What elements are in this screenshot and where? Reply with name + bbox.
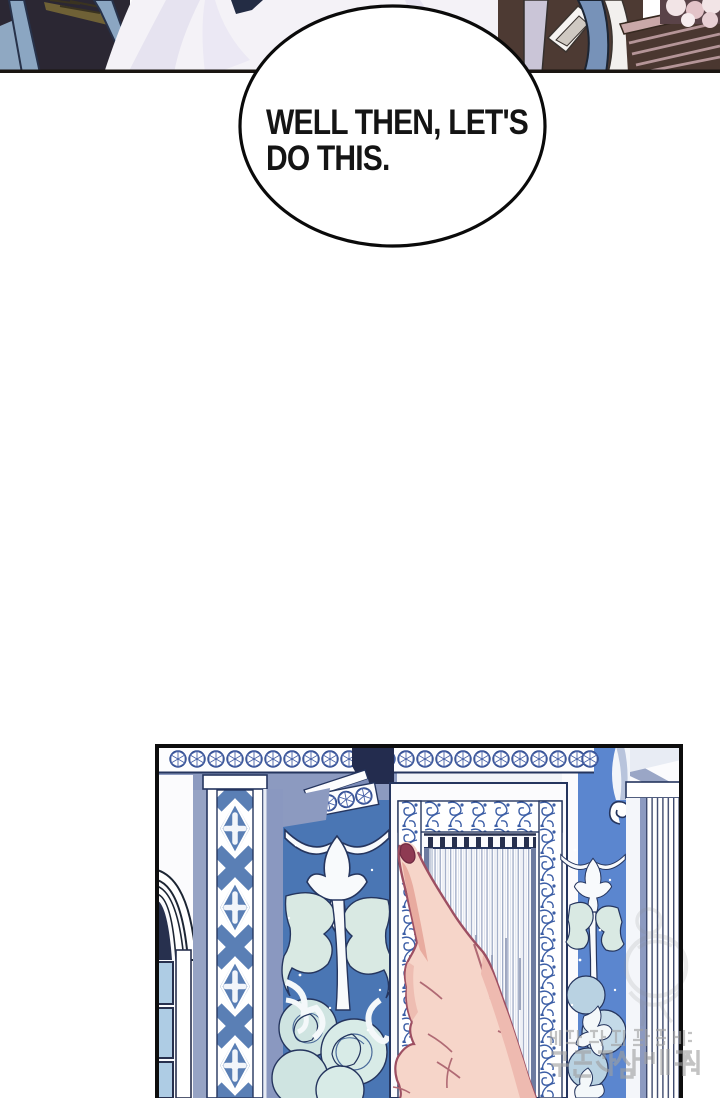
svg-text:WELL THEN, LET'S: WELL THEN, LET'S (266, 102, 528, 142)
svg-text:DO THIS.: DO THIS. (266, 138, 390, 178)
